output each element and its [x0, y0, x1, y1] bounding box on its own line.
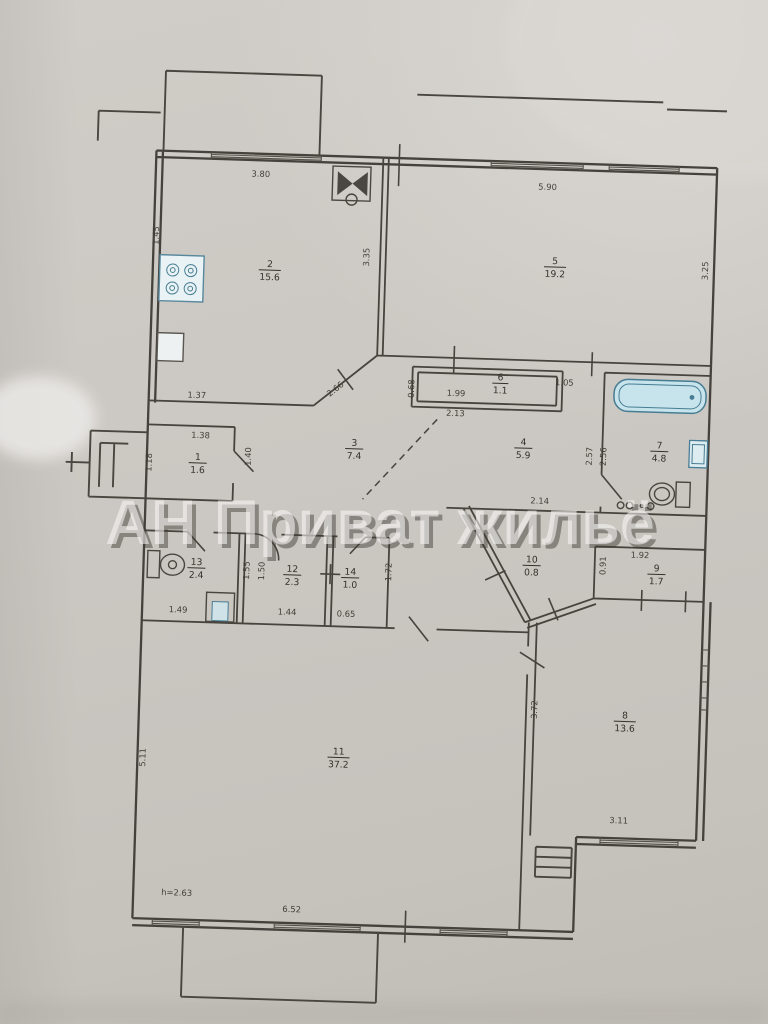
dim-room8-bottom: 3.11	[609, 815, 628, 826]
svg-text:3: 3	[351, 438, 357, 449]
svg-text:1.6: 1.6	[190, 465, 205, 476]
svg-text:5.9: 5.9	[516, 450, 531, 461]
dim-wc13-right-a: 1.55	[241, 561, 252, 580]
room-label-8: 813.6	[613, 710, 636, 735]
room-label-1: 11.6	[188, 452, 207, 477]
dim-wc13-right-b: 1.50	[256, 562, 267, 581]
svg-text:5: 5	[552, 256, 558, 267]
svg-text:13.6: 13.6	[614, 723, 635, 735]
svg-text:4: 4	[520, 437, 526, 448]
dim-kitchen-bottom: 1.37	[187, 390, 206, 401]
svg-text:0.8: 0.8	[524, 567, 539, 578]
svg-text:1.1: 1.1	[493, 385, 508, 396]
svg-text:7: 7	[656, 440, 662, 451]
svg-text:37.2: 37.2	[328, 759, 349, 771]
paper-light-patch	[0, 376, 96, 460]
svg-text:15.6: 15.6	[259, 272, 280, 284]
dim-room6-width: 1.99	[447, 388, 466, 399]
room-label-3: 37.4	[345, 438, 364, 463]
svg-text:4.8: 4.8	[652, 453, 667, 464]
dim-room12-bottom: 1.44	[278, 607, 297, 618]
paper-highlight-top-right	[505, 0, 768, 180]
room-label-2: 215.6	[258, 259, 281, 284]
agency-watermark: АН Приват жильё АН Приват жильё	[105, 488, 658, 562]
ceiling-height-note: h=2.63	[161, 887, 192, 898]
dim-kitchen-left: 1.45	[151, 226, 162, 245]
dim-room6-width2: 2.13	[446, 408, 465, 419]
bathtub-icon	[614, 379, 707, 414]
svg-text:7.4: 7.4	[347, 451, 362, 462]
stove-icon	[159, 255, 204, 302]
dim-room5-top: 5.90	[538, 181, 557, 192]
svg-text:1: 1	[195, 452, 201, 463]
svg-text:1.7: 1.7	[649, 576, 664, 587]
dim-room1-right: 1.40	[243, 447, 254, 466]
dim-room14-right: 1.72	[383, 562, 394, 581]
dim-room11-bottom: 6.52	[282, 904, 301, 915]
room-label-11: 1137.2	[327, 746, 350, 771]
dim-bath-left-b: 2.56	[598, 447, 609, 466]
paper-shadow-bottom	[0, 1002, 768, 1024]
svg-text:2: 2	[267, 259, 273, 270]
svg-text:2.3: 2.3	[285, 577, 300, 588]
dim-room11-left: 5.11	[137, 748, 148, 767]
svg-text:1.0: 1.0	[342, 580, 357, 591]
dim-bath-left-a: 2.57	[584, 447, 595, 466]
dim-wc13-bottom: 1.49	[169, 604, 188, 615]
dim-room5-right: 3.25	[700, 261, 711, 280]
plan-canvas: 3.80 1.45 3.35 1.37 2.66 5.90 3.25 1.99 …	[0, 0, 768, 1024]
svg-text:8: 8	[622, 710, 628, 721]
room-label-5: 519.2	[544, 256, 567, 281]
svg-text:2.4: 2.4	[189, 570, 204, 581]
wc-sink-icon	[206, 592, 235, 622]
dim-room8-left: 3.72	[529, 700, 540, 719]
svg-text:19.2: 19.2	[544, 269, 565, 281]
room-label-7: 74.8	[650, 440, 669, 465]
room-label-9: 91.7	[647, 563, 666, 588]
room-label-4: 45.9	[514, 437, 533, 462]
dim-room1-left: 1.18	[143, 453, 154, 472]
dim-room6-left: 0.68	[406, 379, 417, 398]
dim-room6-right: 1.05	[555, 377, 574, 388]
kitchen-sink-icon	[157, 333, 184, 362]
bath-sink-icon	[689, 440, 708, 468]
dim-kitchen-right: 3.35	[361, 248, 372, 267]
dim-room1-top: 1.38	[191, 430, 210, 441]
watermark-text: АН Приват жильё	[105, 488, 654, 558]
svg-text:9: 9	[653, 563, 659, 574]
apartment-floor-plan-photo: 3.80 1.45 3.35 1.37 2.66 5.90 3.25 1.99 …	[0, 0, 768, 1024]
room-label-14: 141.0	[341, 567, 360, 592]
svg-text:11: 11	[333, 746, 345, 757]
svg-text:12: 12	[286, 564, 298, 575]
dim-kitchen-top: 3.80	[251, 168, 270, 179]
dim-room14-bottom: 0.65	[337, 608, 356, 619]
vent-shaft-icon	[332, 166, 371, 206]
room-label-12: 122.3	[283, 564, 302, 589]
svg-text:6: 6	[497, 372, 503, 383]
svg-text:14: 14	[344, 567, 356, 578]
